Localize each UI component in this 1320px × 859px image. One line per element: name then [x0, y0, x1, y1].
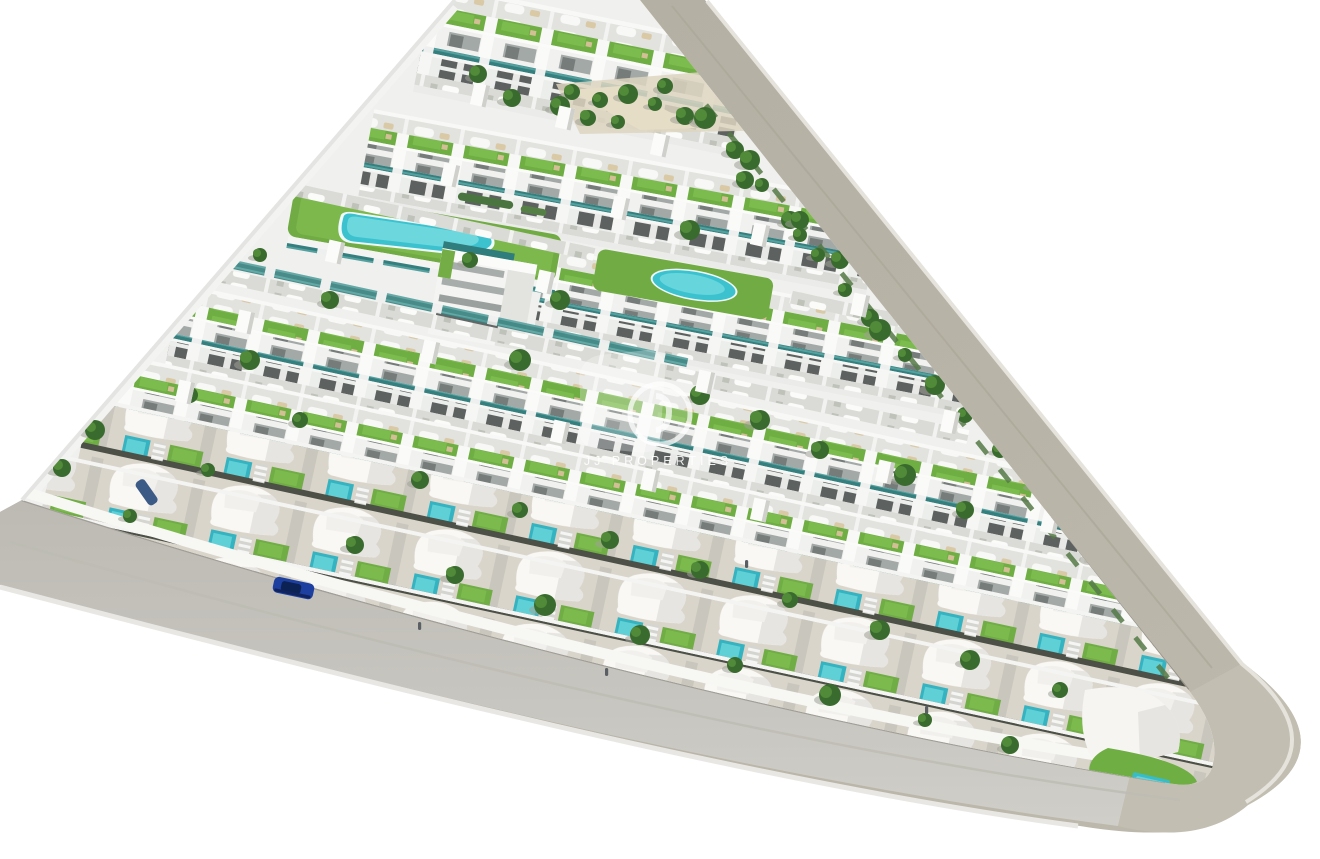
- svg-text:JJ PROPERTIES: JJ PROPERTIES: [584, 454, 732, 468]
